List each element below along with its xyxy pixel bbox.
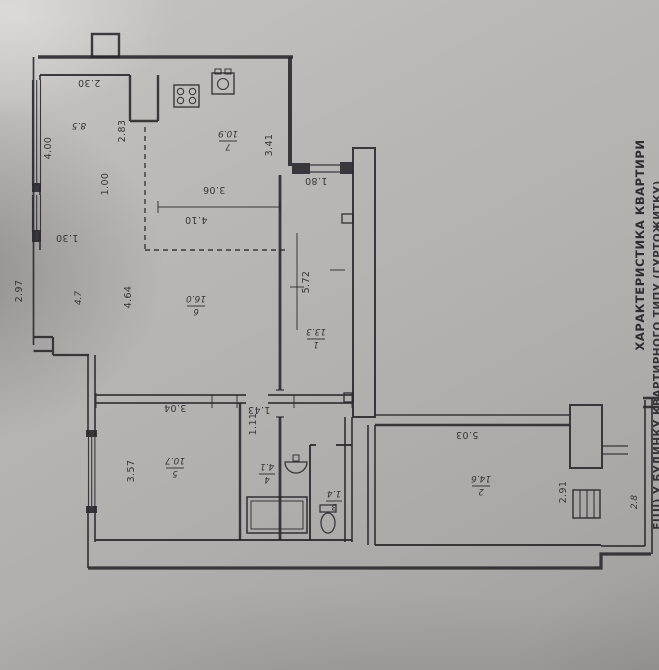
dim-1-30: 1.30 bbox=[56, 232, 79, 243]
wall-top-shaft bbox=[92, 34, 119, 57]
svg-text:5: 5 bbox=[172, 468, 177, 478]
wall-room5-top bbox=[96, 395, 352, 403]
stove-icon bbox=[174, 85, 199, 107]
svg-text:7: 7 bbox=[225, 141, 231, 151]
svg-text:1.4: 1.4 bbox=[327, 488, 342, 498]
dim-2-30: 2.30 bbox=[78, 77, 101, 88]
wall-vestibule-block bbox=[570, 405, 602, 468]
window-sill-block bbox=[86, 430, 97, 437]
svg-text:4: 4 bbox=[264, 474, 269, 484]
dim-5-03: 5.03 bbox=[456, 429, 479, 440]
room-labels: 8.5 7 10.9 6 16.0 1 13.3 5 10.7 4 4.1 3 bbox=[72, 120, 640, 511]
scanned-floor-plan-photo: 2.30 4.00 2.83 1.00 1.30 2.97 4.64 3.06 … bbox=[0, 0, 659, 670]
dim-3-57: 3.57 bbox=[126, 460, 137, 483]
svg-text:6: 6 bbox=[193, 306, 199, 316]
dim-2-91: 2.91 bbox=[558, 481, 569, 504]
dim-3-06: 3.06 bbox=[203, 184, 226, 195]
svg-text:13.3: 13.3 bbox=[306, 326, 326, 336]
room-label-kitchen: 7 10.9 bbox=[218, 128, 238, 151]
svg-text:8.5: 8.5 bbox=[72, 120, 87, 130]
dim-2-97: 2.97 bbox=[14, 280, 25, 303]
room-label-hallway: 1 13.3 bbox=[306, 326, 326, 349]
svg-text:16.0: 16.0 bbox=[186, 293, 206, 303]
dim-1-80: 1.80 bbox=[305, 175, 328, 186]
washbasin-icon bbox=[285, 455, 307, 473]
entrance-steps-icon bbox=[573, 490, 600, 518]
svg-text:10.7: 10.7 bbox=[165, 455, 185, 465]
svg-text:4.7: 4.7 bbox=[74, 291, 84, 306]
dimension-line-horizontal bbox=[158, 201, 280, 213]
window-room5-icon bbox=[89, 437, 95, 506]
room-label-vestibule: 2.8 bbox=[630, 495, 640, 510]
entrance-jamb-right bbox=[340, 162, 353, 174]
dim-1-11: 1.11 bbox=[248, 413, 259, 436]
dim-1-00: 1.00 bbox=[100, 173, 111, 196]
dim-5-72: 5.72 bbox=[301, 271, 312, 294]
entrance-jamb-left bbox=[292, 163, 310, 174]
wall-notch bbox=[342, 214, 353, 223]
dim-4-64: 4.64 bbox=[123, 286, 134, 309]
entrance-door-leaf bbox=[310, 165, 340, 172]
room-label-room2: 2 14.6 bbox=[471, 473, 491, 496]
kitchen-sink-icon bbox=[212, 69, 234, 94]
wall-left-jog bbox=[34, 337, 90, 355]
room-label-room5: 5 10.7 bbox=[165, 455, 185, 478]
svg-text:14.6: 14.6 bbox=[471, 473, 491, 483]
dim-3-41: 3.41 bbox=[264, 134, 275, 157]
floor-plan: 2.30 4.00 2.83 1.00 1.30 2.97 4.64 3.06 … bbox=[0, 0, 659, 670]
svg-text:4.1: 4.1 bbox=[260, 461, 274, 471]
dim-4-10: 4.10 bbox=[185, 214, 208, 225]
room-label-bathroom: 4 4.1 bbox=[259, 461, 275, 484]
svg-text:2: 2 bbox=[478, 486, 483, 496]
dim-4-00: 4.00 bbox=[43, 137, 54, 160]
caption-title: ХАРАКТЕРИСТИКА КВАРТИРИ bbox=[633, 139, 647, 350]
window-sill-block bbox=[86, 506, 97, 513]
svg-text:1: 1 bbox=[313, 339, 318, 349]
room-label-loggia: 4.7 bbox=[74, 291, 84, 306]
windows bbox=[33, 80, 95, 506]
room-label-8-5: 8.5 bbox=[72, 120, 87, 130]
dim-3-04: 3.04 bbox=[164, 402, 187, 413]
caption: ХАРАКТЕРИСТИКА КВАРТИРИ ЕЦІЇ) У БУДИНКУ … bbox=[633, 139, 659, 529]
dim-2-83: 2.83 bbox=[117, 120, 128, 143]
wall-vestibule-right bbox=[645, 398, 652, 554]
wall-bottom-outer bbox=[88, 554, 651, 568]
guide-lines bbox=[145, 127, 345, 330]
wall-closet bbox=[130, 75, 158, 121]
wall-vent-shaft bbox=[345, 417, 375, 545]
wall-column-external bbox=[353, 148, 375, 417]
caption-subtitle: ЕЦІЇ) У БУДИНКУ КВАРТИРНОГО ТИПУ (ГУРТОЖ… bbox=[650, 180, 659, 529]
room-label-living: 6 16.0 bbox=[186, 293, 206, 316]
svg-text:3: 3 bbox=[331, 501, 336, 511]
room-label-wc: 3 1.4 bbox=[326, 488, 342, 511]
svg-text:10.9: 10.9 bbox=[218, 128, 238, 138]
svg-text:2.8: 2.8 bbox=[630, 495, 640, 510]
bathtub-icon bbox=[247, 497, 307, 533]
vestibule-door-leaf bbox=[602, 446, 628, 454]
